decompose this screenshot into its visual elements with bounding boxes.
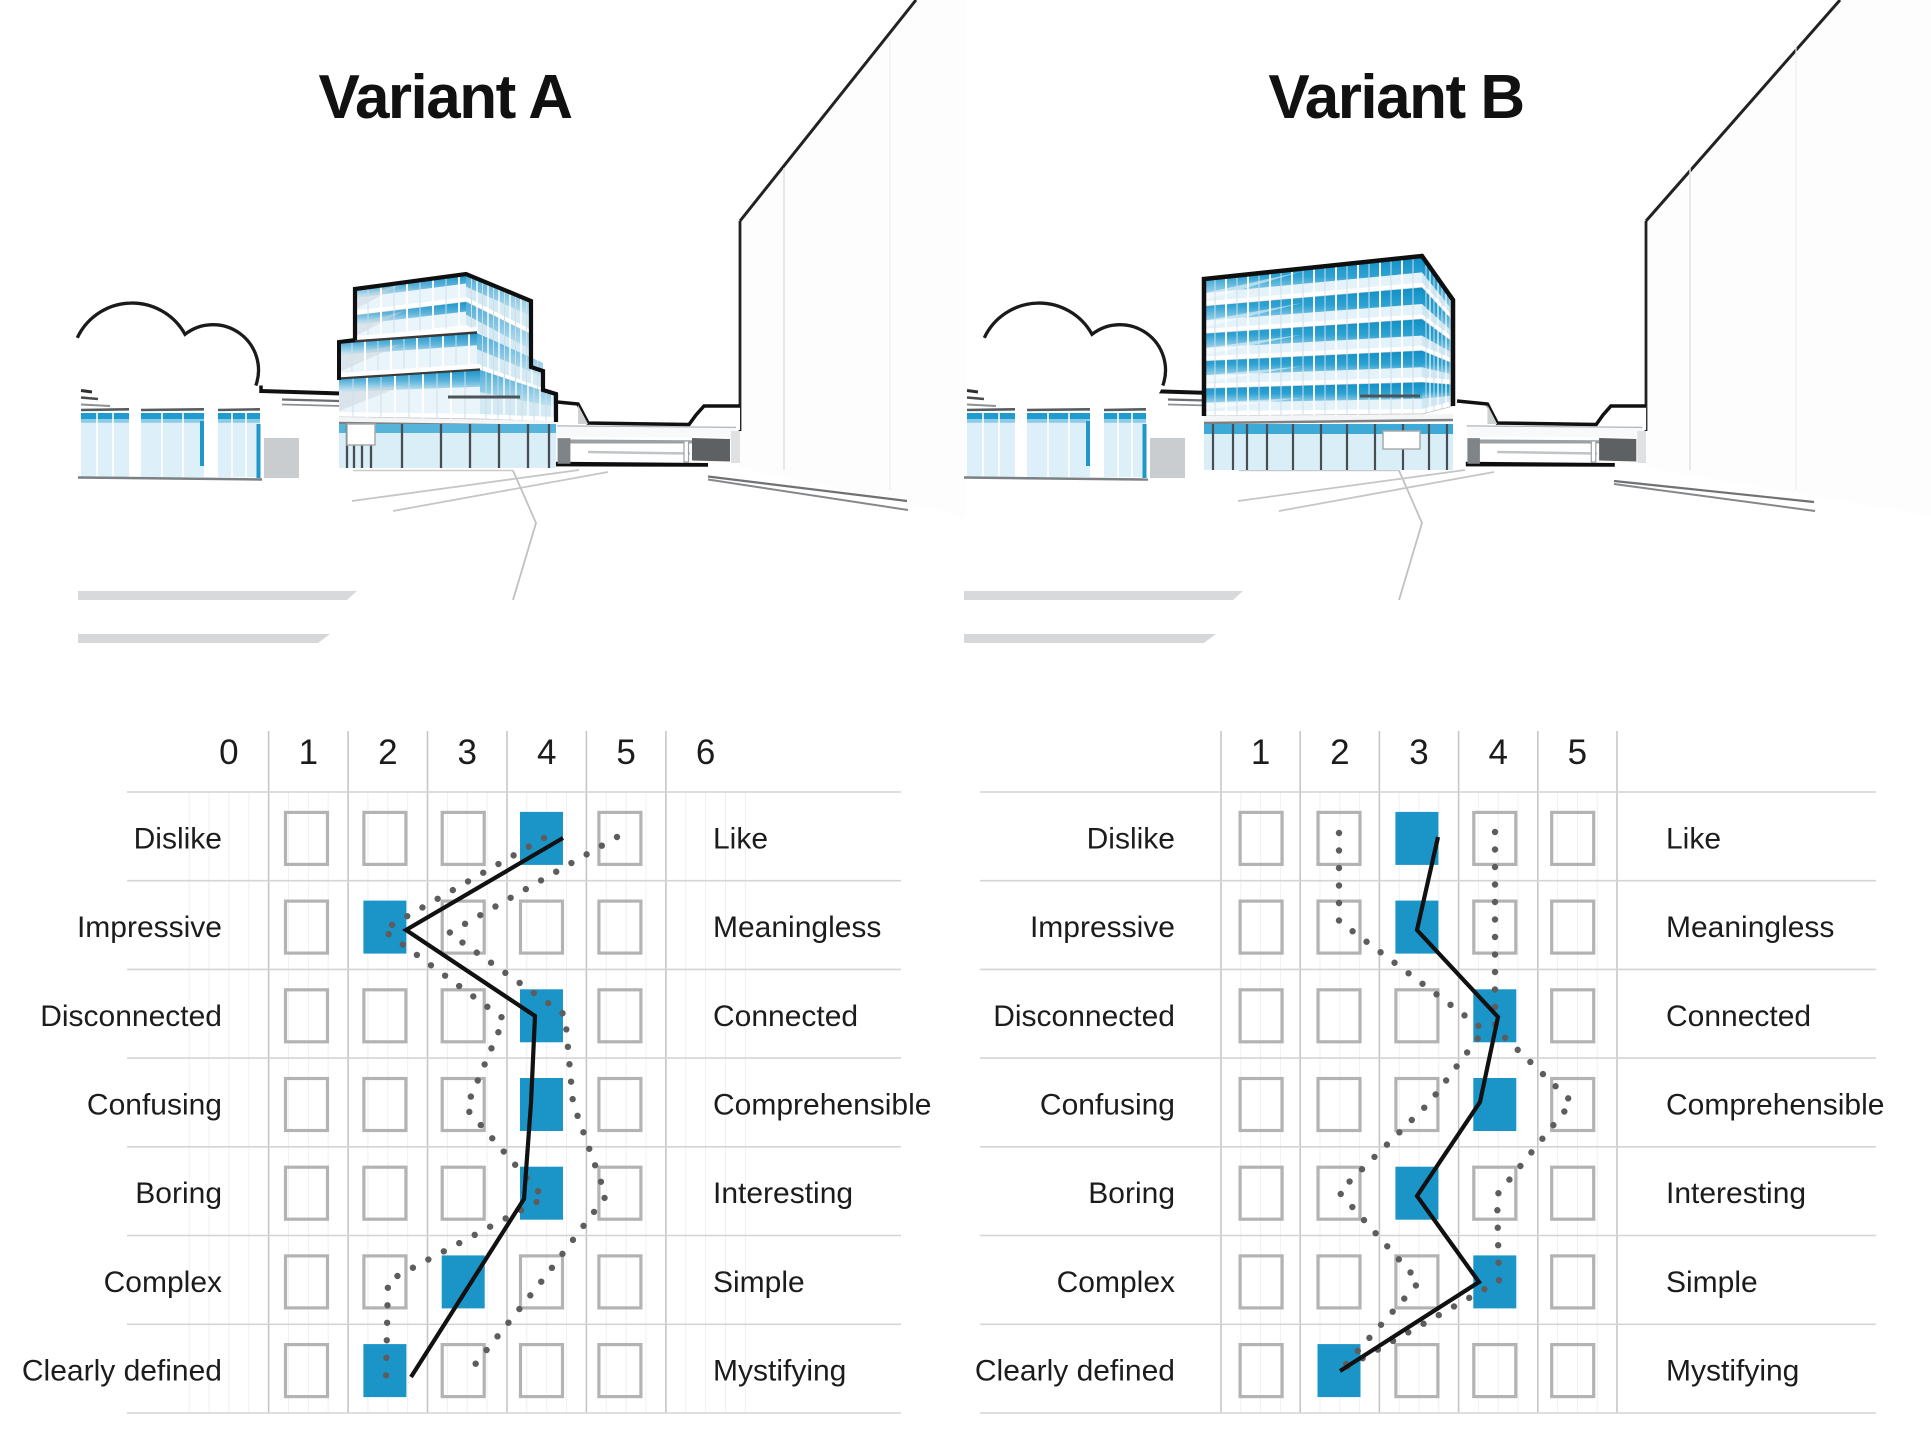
svg-text:0: 0 (219, 733, 238, 772)
svg-text:Boring: Boring (135, 1177, 222, 1210)
svg-text:Connected: Connected (1666, 1000, 1811, 1033)
svg-text:3: 3 (1409, 733, 1428, 772)
svg-text:Complex: Complex (1057, 1266, 1175, 1299)
svg-text:3: 3 (457, 733, 476, 772)
svg-text:Variant B: Variant B (1268, 63, 1523, 132)
svg-text:1: 1 (1251, 733, 1270, 772)
svg-text:6: 6 (696, 733, 715, 772)
svg-text:Meaningless: Meaningless (713, 911, 881, 944)
svg-text:Mystifying: Mystifying (713, 1355, 846, 1388)
svg-text:Disconnected: Disconnected (993, 1000, 1175, 1033)
svg-text:Comprehensible: Comprehensible (713, 1089, 931, 1122)
svg-text:Dislike: Dislike (1087, 822, 1175, 855)
svg-text:2: 2 (378, 733, 397, 772)
svg-text:Complex: Complex (104, 1266, 222, 1299)
svg-text:Connected: Connected (713, 1000, 858, 1033)
svg-text:Mystifying: Mystifying (1666, 1355, 1799, 1388)
svg-text:Clearly defined: Clearly defined (22, 1355, 222, 1388)
svg-text:Clearly defined: Clearly defined (975, 1355, 1175, 1388)
svg-text:Confusing: Confusing (1040, 1089, 1175, 1122)
svg-text:5: 5 (616, 733, 635, 772)
svg-text:Variant A: Variant A (319, 63, 573, 132)
svg-text:Disconnected: Disconnected (40, 1000, 222, 1033)
svg-text:Impressive: Impressive (77, 911, 222, 944)
svg-text:Comprehensible: Comprehensible (1666, 1089, 1884, 1122)
svg-text:Like: Like (713, 822, 768, 855)
svg-text:2: 2 (1330, 733, 1349, 772)
svg-text:Interesting: Interesting (713, 1177, 853, 1210)
svg-text:5: 5 (1568, 733, 1587, 772)
svg-text:Interesting: Interesting (1666, 1177, 1806, 1210)
svg-text:Confusing: Confusing (87, 1089, 222, 1122)
svg-text:Boring: Boring (1088, 1177, 1175, 1210)
svg-text:Impressive: Impressive (1030, 911, 1175, 944)
svg-text:1: 1 (299, 733, 318, 772)
svg-text:4: 4 (1488, 733, 1507, 772)
svg-text:Simple: Simple (713, 1266, 805, 1299)
svg-text:Meaningless: Meaningless (1666, 911, 1834, 944)
svg-text:4: 4 (537, 733, 556, 772)
svg-text:Dislike: Dislike (134, 822, 222, 855)
svg-text:Like: Like (1666, 822, 1721, 855)
svg-text:Simple: Simple (1666, 1266, 1758, 1299)
